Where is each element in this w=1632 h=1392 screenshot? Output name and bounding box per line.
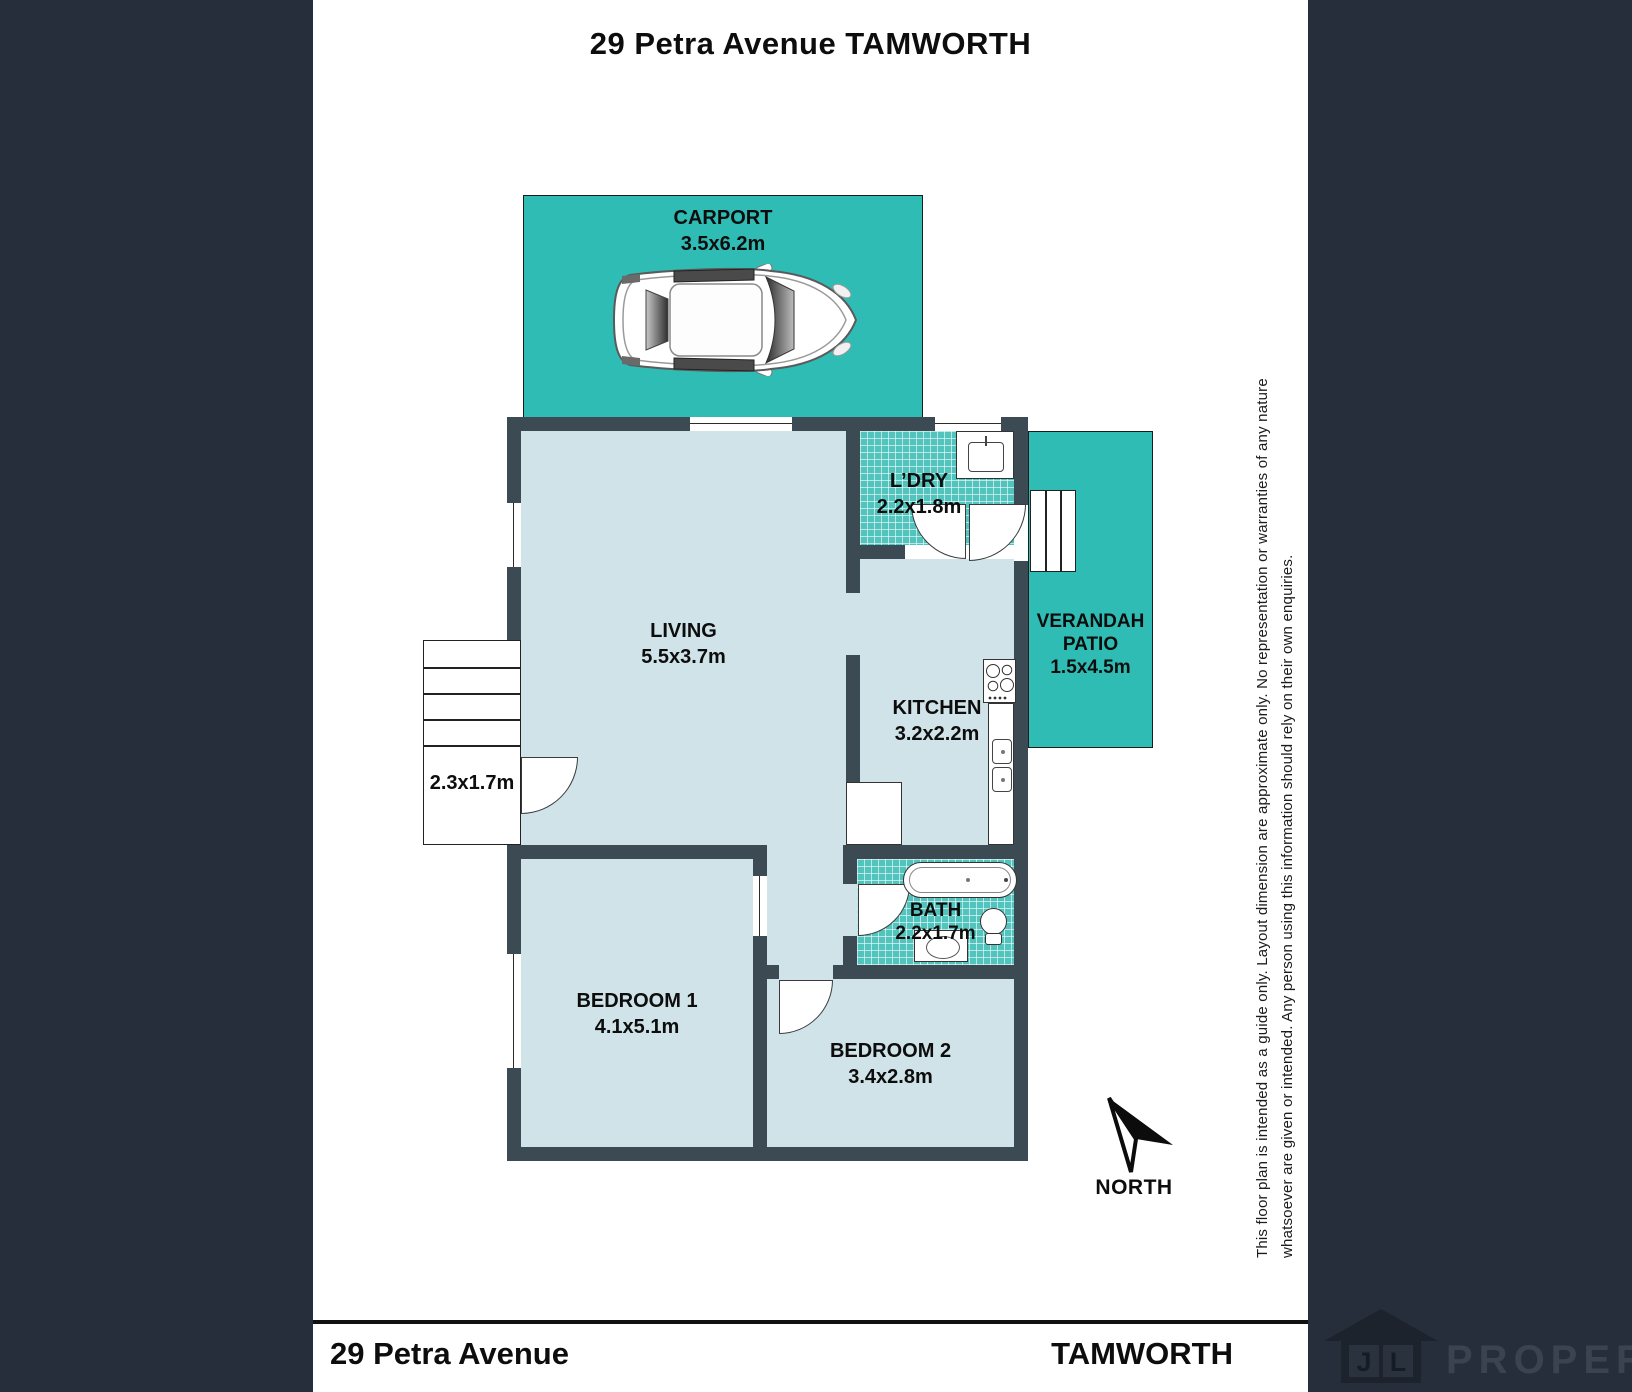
logo-letter-j: J [1356, 1347, 1371, 1377]
room-dims: 4.1x5.1m [521, 1014, 753, 1040]
room-dims: 2.2x1.7m [857, 922, 1014, 945]
room-name: KITCHEN [860, 695, 1014, 721]
room-name: L’DRY [854, 468, 984, 494]
step-line [1045, 491, 1047, 571]
room-name: VERANDAH [1028, 610, 1153, 633]
tap-icon [985, 436, 987, 446]
room-dims: 2.2x1.8m [854, 494, 984, 520]
page-title: 29 Petra Avenue TAMWORTH [313, 26, 1308, 62]
footer-divider [313, 1320, 1308, 1324]
bathtub-rim [909, 867, 1011, 893]
disclaimer-line1: This floor plan is intended as a guide o… [1250, 352, 1275, 1258]
window-marker [753, 876, 767, 936]
room-dims: 5.5x3.7m [521, 644, 846, 670]
north-label: NORTH [1072, 1176, 1196, 1200]
step-line [424, 693, 520, 695]
footer-suburb: TAMWORTH [313, 1336, 1233, 1372]
kitchen-nook [846, 782, 902, 845]
room-name2: PATIO [1028, 633, 1153, 656]
window-marker [507, 503, 521, 567]
kitchen-label: KITCHEN 3.2x2.2m [860, 695, 1014, 747]
car-icon [606, 264, 864, 376]
window-marker [507, 954, 521, 1068]
room-name: BEDROOM 1 [521, 988, 753, 1014]
bedroom1-label: BEDROOM 1 4.1x5.1m [521, 988, 753, 1040]
laundry-label: L’DRY 2.2x1.8m [854, 468, 984, 520]
entry-steps [423, 640, 521, 845]
verandah-label: VERANDAH PATIO 1.5x4.5m [1028, 610, 1153, 679]
window-marker [935, 417, 1001, 431]
verandah-area [1028, 431, 1153, 748]
room-dims: 3.2x2.2m [860, 721, 1014, 747]
bath-door-opening [843, 884, 857, 936]
room-dims: 3.5x6.2m [523, 231, 923, 257]
room-name: BEDROOM 2 [767, 1038, 1014, 1064]
room-name: BATH [857, 899, 1014, 922]
step-line [424, 667, 520, 669]
step-line [424, 745, 520, 747]
floorplan-page: 29 Petra Avenue TAMWORTH CARPORT 3.5x6.2… [0, 0, 1632, 1392]
room-name: LIVING [521, 618, 846, 644]
bath-label: BATH 2.2x1.7m [857, 899, 1014, 945]
kitchen-sink-icon [992, 767, 1012, 792]
living-kitchen-opening [846, 593, 860, 655]
north-arrow-icon [1106, 1096, 1176, 1174]
living-label: LIVING 5.5x3.7m [521, 618, 846, 670]
bedroom2-door-opening [779, 965, 833, 979]
entry-steps-dims: 2.3x1.7m [423, 770, 521, 796]
bedroom2-label: BEDROOM 2 3.4x2.8m [767, 1038, 1014, 1090]
disclaimer-line2: whatsoever are given or intended. Any pe… [1275, 352, 1300, 1258]
room-dims: 1.5x4.5m [1028, 656, 1153, 679]
disclaimer-text: This floor plan is intended as a guide o… [1250, 352, 1302, 1258]
window-marker [690, 417, 792, 431]
room-dims: 3.4x2.8m [767, 1064, 1014, 1090]
logo-property-text: PROPERTY [1446, 1338, 1632, 1383]
hallway [767, 845, 843, 965]
logo-letter-l: L [1390, 1347, 1407, 1377]
jl-house-icon: J L [1322, 1305, 1440, 1385]
carport-label: CARPORT 3.5x6.2m [523, 205, 923, 257]
room-name: CARPORT [523, 205, 923, 231]
verandah-steps [1030, 490, 1076, 572]
step-line [424, 719, 520, 721]
step-line [1060, 491, 1062, 571]
bathtub-icon [903, 862, 1017, 898]
